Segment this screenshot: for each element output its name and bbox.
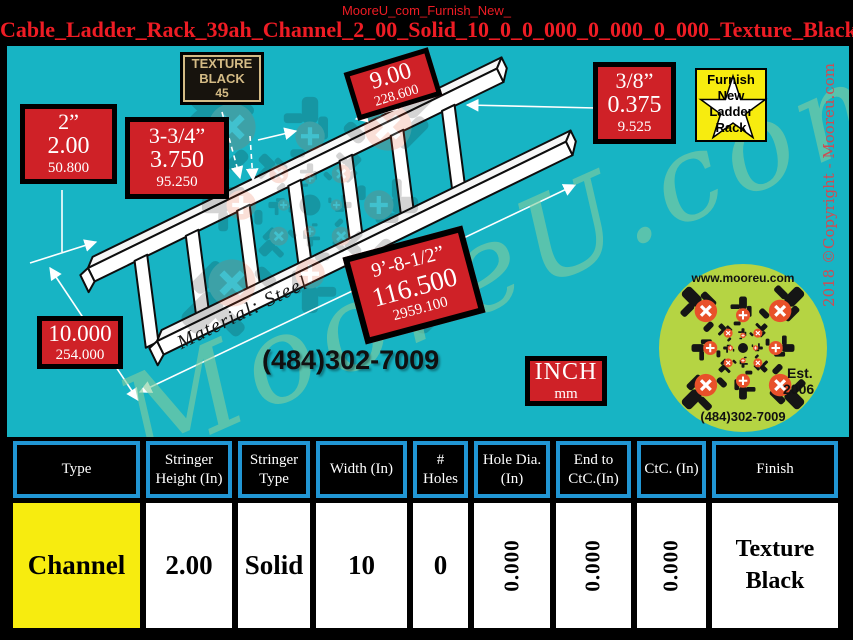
column-header-stringer-type: Stringer Type <box>238 441 310 498</box>
ladder-drawing: Material: Steel <box>76 46 585 379</box>
column-header-end-to-ctc: End to CtC.(In) <box>556 441 631 498</box>
cell-hole-dia: 0.000 <box>474 503 550 628</box>
diagram-area: Material: Steel www.mooreu.com <box>7 46 849 437</box>
label-line: mm <box>530 386 602 403</box>
dimension-line <box>467 105 596 108</box>
label-line: 0.375 <box>598 92 671 119</box>
plate-line: 45 <box>183 87 261 100</box>
column-header-holes: # Holes <box>413 441 468 498</box>
rotated-value: 0.000 <box>659 539 684 591</box>
label-line: 3.750 <box>130 147 224 174</box>
label-line: 95.250 <box>130 174 224 191</box>
rotated-value: 0.000 <box>581 539 606 591</box>
product-spec-image: MooreU_com_Furnish_New_ Cable_Ladder_Rac… <box>0 0 853 640</box>
dimension-line <box>30 242 96 263</box>
spec-table-value-row: Channel 2.00 Solid 10 0 0.000 0.000 0.00… <box>0 498 853 628</box>
spec-table-header-row: Type Stringer Height (In) Stringer Type … <box>0 437 853 498</box>
plate-line: TEXTURE <box>183 57 261 72</box>
texture-plate-label: TEXTURE BLACK 45 <box>180 52 264 105</box>
label-line: 3-3/4” <box>130 124 224 147</box>
badge-line: Rack <box>697 120 765 136</box>
cell-holes: 0 <box>413 503 468 628</box>
cell-end-to-ctc: 0.000 <box>556 503 631 628</box>
cell-stringer-height: 2.00 <box>146 503 232 628</box>
label-hole-diameter: 3/8” 0.375 9.525 <box>593 62 676 144</box>
column-header-width: Width (In) <box>316 441 407 498</box>
label-line: 254.000 <box>42 347 118 364</box>
cell-type: Channel <box>13 503 140 628</box>
column-header-ctc: CtC. (In) <box>637 441 706 498</box>
label-stringer-height: 2” 2.00 50.800 <box>20 104 117 184</box>
store-subtitle: MooreU_com_Furnish_New_ <box>0 3 853 18</box>
label-line: 10.000 <box>42 321 118 347</box>
label-units: INCH mm <box>525 356 607 406</box>
dimension-line <box>258 131 296 140</box>
dimension-line <box>250 136 253 180</box>
label-line: INCH <box>530 359 602 386</box>
label-line: 3/8” <box>598 69 671 92</box>
furnish-new-badge: Furnish New Ladder Rack <box>695 68 767 142</box>
product-title: Cable_Ladder_Rack_39ah_Channel_2_00_Soli… <box>0 17 853 43</box>
cell-finish: Texture Black <box>712 503 838 628</box>
badge-text: Furnish New Ladder Rack <box>697 72 765 135</box>
column-header-hole-dia: Hole Dia. (In) <box>474 441 550 498</box>
spec-table: Type Stringer Height (In) Stringer Type … <box>0 437 853 640</box>
logo-year: 2006 <box>783 381 814 397</box>
label-flange-width: 3-3/4” 3.750 95.250 <box>125 117 229 199</box>
label-line: 2” <box>25 110 112 133</box>
column-header-finish: Finish <box>712 441 838 498</box>
cell-width: 10 <box>316 503 407 628</box>
label-line: 50.800 <box>25 160 112 177</box>
cell-stringer-type: Solid <box>238 503 310 628</box>
badge-line: New <box>697 88 765 104</box>
copyright-text: 2018 ©Copyright - Mooreu.com <box>820 63 838 307</box>
label-width: 10.000 254.000 <box>37 316 123 369</box>
phone-number: (484)302-7009 <box>262 345 439 376</box>
plate-line: BLACK <box>183 72 261 87</box>
logo-est: Est. <box>787 365 813 381</box>
logo-url: www.mooreu.com <box>691 271 795 285</box>
column-header-type: Type <box>13 441 140 498</box>
badge-line: Ladder <box>697 104 765 120</box>
column-header-stringer-height: Stringer Height (In) <box>146 441 232 498</box>
logo-phone: (484)302-7009 <box>700 409 785 424</box>
label-line: 2.00 <box>25 133 112 160</box>
rotated-value: 0.000 <box>500 539 525 591</box>
cell-ctc: 0.000 <box>637 503 706 628</box>
mooreu-logo: www.mooreu.com Est. 2006 (484)302-7009 <box>626 231 849 437</box>
badge-line: Furnish <box>697 72 765 88</box>
label-line: 9.525 <box>598 119 671 136</box>
